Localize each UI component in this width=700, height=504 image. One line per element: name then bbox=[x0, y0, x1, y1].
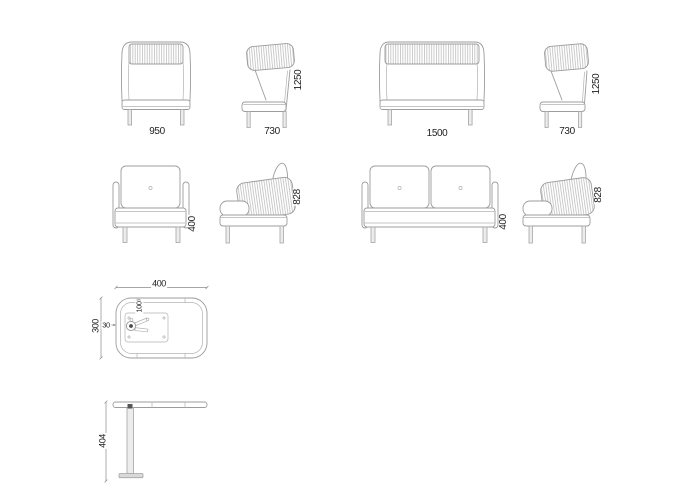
table-base bbox=[119, 474, 143, 478]
seat-base bbox=[523, 215, 590, 226]
seat-cushion bbox=[540, 102, 585, 112]
leg bbox=[283, 112, 286, 128]
table-column bbox=[127, 408, 134, 474]
clamp-block bbox=[128, 404, 133, 409]
leg bbox=[226, 226, 229, 243]
dim-highback-armchair-width: 950 bbox=[148, 127, 166, 137]
leg bbox=[545, 112, 548, 128]
leg bbox=[280, 226, 283, 243]
dim-highback-sofa-depth: 730 bbox=[558, 127, 576, 137]
leg bbox=[123, 227, 127, 243]
armrest bbox=[523, 201, 552, 216]
back-cushion bbox=[121, 166, 180, 208]
dim-lowback-armchair-seat-height: 400 bbox=[188, 215, 198, 233]
leg bbox=[469, 110, 473, 126]
lowback-sofa-side-view bbox=[521, 160, 603, 245]
dim-lowback-sofa-height: 828 bbox=[594, 186, 604, 204]
dim-lowback-armchair-height: 828 bbox=[293, 188, 303, 206]
dim-table-inset: 100 bbox=[135, 300, 143, 313]
leg bbox=[483, 227, 487, 243]
seat-base bbox=[220, 215, 287, 226]
dim-highback-sofa-height: 1250 bbox=[592, 73, 602, 96]
screw-hole bbox=[128, 336, 130, 338]
screw-hole bbox=[163, 336, 165, 338]
dim-highback-armchair-depth: 730 bbox=[263, 127, 281, 137]
dim-lowback-sofa-seat-height: 400 bbox=[499, 213, 509, 231]
leg bbox=[180, 110, 184, 126]
armrest bbox=[220, 201, 249, 216]
leg bbox=[128, 110, 132, 126]
clamp-pin bbox=[129, 324, 133, 328]
lowback-armchair-front-view bbox=[111, 163, 195, 245]
lowback-sofa-front-view bbox=[360, 163, 502, 245]
leg bbox=[582, 226, 585, 243]
seat-base bbox=[364, 208, 495, 227]
technical-drawing-sheet: 950 730 1250 1500 730 1250 400 828 400 8… bbox=[0, 0, 700, 504]
seat-cushion bbox=[122, 100, 190, 110]
seat-cushion bbox=[380, 100, 484, 110]
dim-highback-sofa-width: 1500 bbox=[426, 129, 449, 139]
highback-sofa-front-view bbox=[376, 40, 488, 130]
ribbed-headrest-panel bbox=[129, 44, 183, 64]
dim-table-edge: 30 bbox=[101, 321, 111, 329]
lever-knob bbox=[146, 318, 149, 321]
leg bbox=[529, 226, 532, 243]
ribbed-headrest-panel bbox=[385, 44, 479, 64]
dim-table-depth: 300 bbox=[92, 318, 101, 334]
seat-cushion bbox=[242, 102, 286, 112]
ribbed-headrest-panel bbox=[544, 43, 589, 72]
highback-armchair-front-view bbox=[118, 40, 194, 130]
leg bbox=[388, 110, 392, 126]
dim-highback-armchair-height: 1250 bbox=[294, 69, 304, 92]
leg bbox=[176, 227, 180, 243]
ribbed-headrest-panel bbox=[246, 43, 295, 71]
table-side-view bbox=[92, 396, 214, 488]
leg bbox=[371, 227, 375, 243]
table-top-slab bbox=[113, 402, 207, 408]
back-cushion bbox=[370, 166, 429, 208]
dim-table-width: 400 bbox=[151, 280, 167, 289]
lowback-armchair-side-view bbox=[218, 160, 300, 245]
screw-hole bbox=[128, 317, 130, 319]
leg bbox=[579, 112, 582, 128]
screw-hole bbox=[163, 317, 165, 319]
back-cushion bbox=[431, 166, 490, 208]
leg bbox=[247, 112, 250, 128]
seat-base bbox=[115, 208, 186, 227]
dim-table-height: 404 bbox=[99, 433, 108, 449]
